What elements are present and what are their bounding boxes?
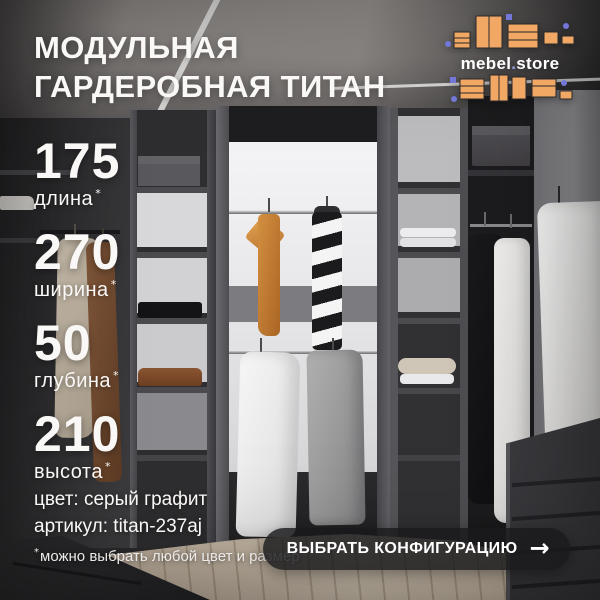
spec-list: 175 длина* 270 ширина* 50 глубина* 210 в… (34, 136, 120, 500)
spec-height: 210 высота* (34, 409, 120, 483)
furniture-icons-top (440, 10, 580, 54)
product-details: цвет: серый графит артикул: titan-237aj (34, 486, 207, 540)
logo-text: mebel.store (432, 55, 588, 72)
footnote-marker: * (113, 369, 119, 382)
logo-brand-right: store (516, 54, 559, 73)
footnote: *можно выбрать любой цвет и размер (34, 547, 300, 565)
spec-width-value: 270 (34, 227, 120, 277)
choose-configuration-button[interactable]: ВЫБРАТЬ КОНФИГУРАЦИЮ → (263, 528, 570, 570)
logo-brand-left: mebel (461, 54, 512, 73)
spec-label-text: ширина (34, 279, 109, 301)
page-title: МОДУЛЬНАЯ ГАРДЕРОБНАЯ ТИТАН (34, 28, 386, 106)
cta-label: ВЫБРАТЬ КОНФИГУРАЦИЮ (287, 540, 518, 558)
spec-depth: 50 глубина* (34, 318, 120, 392)
footnote-marker: * (34, 547, 39, 558)
overlay: МОДУЛЬНАЯ ГАРДЕРОБНАЯ ТИТАН mebel.store (0, 0, 600, 600)
spec-width: 270 ширина* (34, 227, 120, 301)
ad-banner: МОДУЛЬНАЯ ГАРДЕРОБНАЯ ТИТАН mebel.store (0, 0, 600, 600)
arrow-right-icon: → (529, 536, 550, 560)
title-line-2: ГАРДЕРОБНАЯ ТИТАН (34, 69, 386, 104)
spec-length-value: 175 (34, 136, 120, 186)
furniture-icons-bottom (440, 73, 580, 113)
spec-length-label: длина* (34, 188, 120, 210)
spec-label-text: высота (34, 461, 103, 483)
footnote-text: можно выбрать любой цвет и размер (40, 548, 300, 565)
spec-depth-label: глубина* (34, 370, 120, 392)
footnote-marker: * (95, 187, 101, 200)
spec-label-text: глубина (34, 370, 111, 392)
footnote-marker: * (105, 460, 111, 473)
sku-line: артикул: titan-237aj (34, 513, 207, 540)
color-line: цвет: серый графит (34, 486, 207, 513)
spec-height-value: 210 (34, 409, 120, 459)
footnote-marker: * (111, 278, 117, 291)
spec-width-label: ширина* (34, 279, 120, 301)
title-line-1: МОДУЛЬНАЯ (34, 30, 239, 65)
spec-length: 175 длина* (34, 136, 120, 210)
spec-depth-value: 50 (34, 318, 120, 368)
mebel-store-logo: mebel.store (432, 10, 588, 113)
spec-height-label: высота* (34, 461, 120, 483)
spec-label-text: длина (34, 188, 93, 210)
